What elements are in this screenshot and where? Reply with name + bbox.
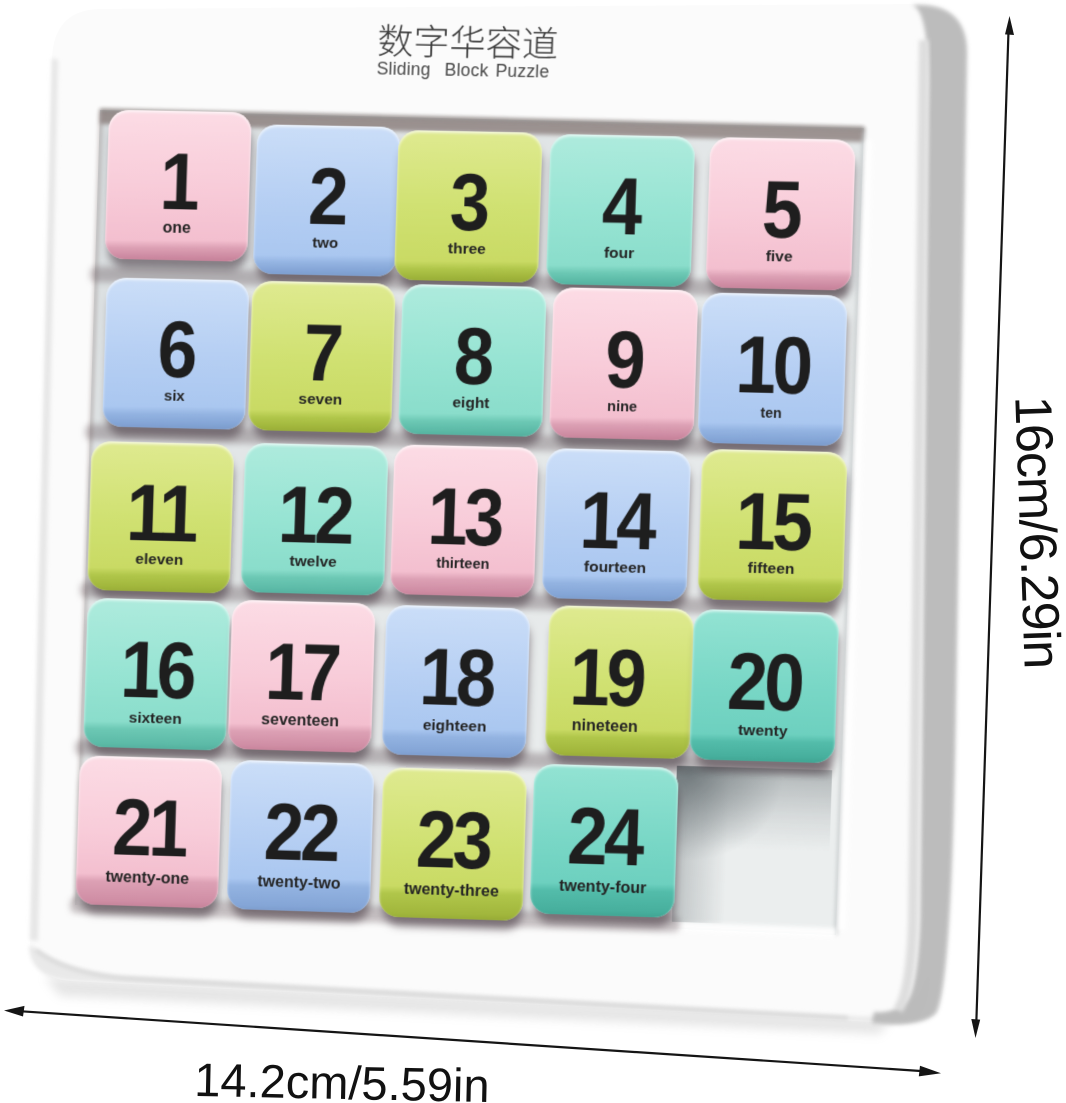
svg-text:14.2cm/5.59in: 14.2cm/5.59in <box>194 1053 490 1103</box>
svg-text:16cm/6.29in: 16cm/6.29in <box>1003 395 1066 669</box>
